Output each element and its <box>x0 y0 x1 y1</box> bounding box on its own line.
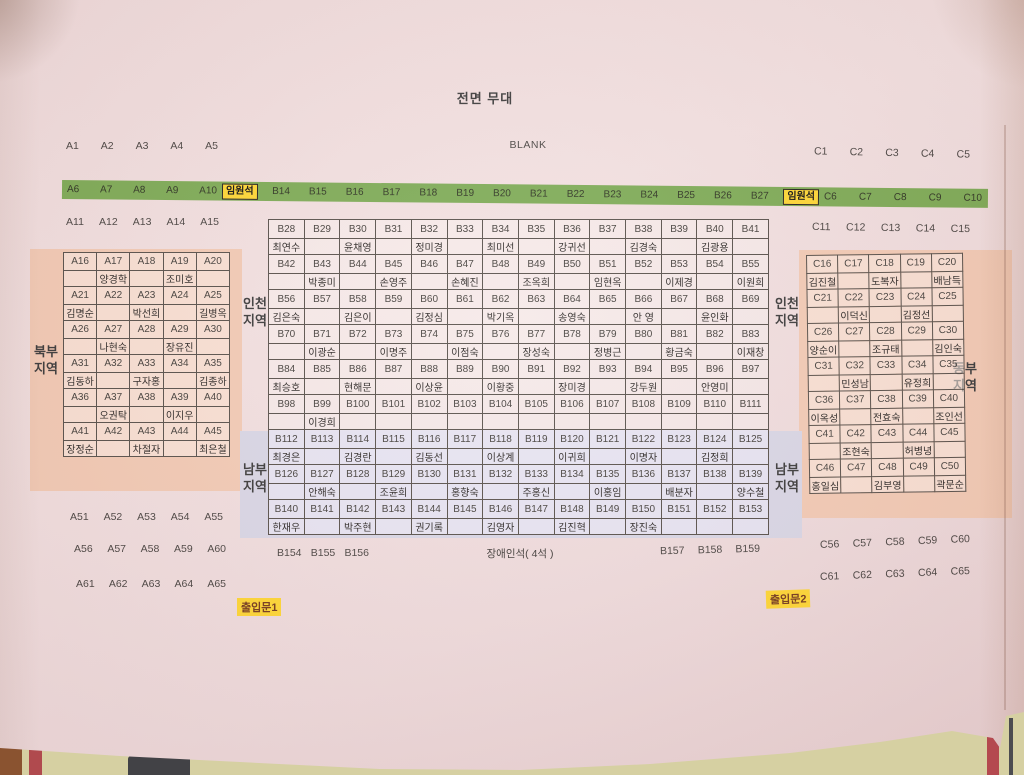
seat-cell-b134: B134 <box>554 465 590 484</box>
seat-cell-a26: A26 <box>64 321 97 339</box>
seat-label-a4: A4 <box>170 140 183 152</box>
seat-cell-b40: B40 <box>697 220 733 239</box>
name-cell <box>554 414 590 430</box>
seat-label-b158: B158 <box>698 544 723 557</box>
front-row-band: A6A7A8A9A10 임원석 B14B15B16B17B18B19B20B21… <box>62 180 988 208</box>
name-cell <box>590 239 626 255</box>
seat-cell-a42: A42 <box>97 423 130 441</box>
name-cell <box>697 344 733 360</box>
seat-cell-c17: C17 <box>838 255 869 273</box>
name-cell <box>901 340 932 356</box>
seat-cell-b117: B117 <box>447 430 483 449</box>
name-cell <box>64 407 97 423</box>
seat-cell-b86: B86 <box>340 360 376 379</box>
seat-cell-b37: B37 <box>590 220 626 239</box>
seat-cell-b61: B61 <box>447 290 483 309</box>
name-cell: 이원희 <box>733 274 769 290</box>
seat-cell-b128: B128 <box>340 465 376 484</box>
name-cell: 이상계 <box>483 449 519 465</box>
door-1-badge: 출입문1 <box>237 598 281 616</box>
seat-label-c56: C56 <box>820 538 840 551</box>
seat-row-a61-a65: A61A62A63A64A65 <box>76 578 226 590</box>
seat-cell-b85: B85 <box>304 360 340 379</box>
seat-label-a3: A3 <box>136 140 149 152</box>
name-cell: 이상윤 <box>411 379 447 395</box>
name-cell <box>838 273 869 289</box>
name-cell: 이광순 <box>304 344 340 360</box>
name-cell: 이재창 <box>733 344 769 360</box>
seat-cell-a40: A40 <box>196 389 229 407</box>
seat-cell-a39: A39 <box>163 389 196 407</box>
seat-label-b154: B154 <box>277 547 302 559</box>
seat-label-a5: A5 <box>205 140 218 152</box>
name-cell: 이옥성 <box>809 409 840 425</box>
name-cell <box>130 271 163 287</box>
seat-cell-a33: A33 <box>130 355 163 373</box>
name-cell <box>411 484 447 500</box>
name-cell <box>304 239 340 255</box>
seat-cell-b32: B32 <box>411 220 447 239</box>
seat-cell-b71: B71 <box>304 325 340 344</box>
seat-cell-b110: B110 <box>697 395 733 414</box>
seat-table-east: C16C17C18C19C20김진철도복자배남득C21C22C23C24C25이… <box>806 253 966 494</box>
name-cell: 박종미 <box>304 274 340 290</box>
seat-cell-c39: C39 <box>902 390 933 408</box>
seat-label-a61: A61 <box>76 578 95 590</box>
seat-label-c10: C10 <box>964 193 982 204</box>
seat-cell-b87: B87 <box>376 360 412 379</box>
name-cell <box>697 274 733 290</box>
seat-label-b21: B21 <box>530 188 548 199</box>
seat-cell-b100: B100 <box>340 395 376 414</box>
name-cell: 조인선 <box>933 407 964 423</box>
seat-row-c56-c60: C56C57C58C59C60 <box>820 533 970 551</box>
seat-cell-b33: B33 <box>447 220 483 239</box>
seat-cell-b68: B68 <box>697 290 733 309</box>
seat-cell-a21: A21 <box>64 287 97 305</box>
name-cell: 조현숙 <box>840 443 871 459</box>
seat-cell-b83: B83 <box>733 325 769 344</box>
name-cell: 안 영 <box>626 309 662 325</box>
name-cell: 배남득 <box>931 271 962 287</box>
name-cell: 손영주 <box>376 274 412 290</box>
name-cell <box>733 239 769 255</box>
seat-label-c7: C7 <box>859 192 872 203</box>
seat-row-a1-a5: A1A2A3A4A5 <box>66 140 218 152</box>
name-cell <box>196 407 229 423</box>
seat-cell-a29: A29 <box>163 321 196 339</box>
seat-cell-c45: C45 <box>934 423 965 441</box>
seat-cell-b105: B105 <box>518 395 554 414</box>
seat-label-b20: B20 <box>493 188 511 199</box>
name-cell <box>269 274 305 290</box>
seat-cell-b149: B149 <box>590 500 626 519</box>
seat-cell-a24: A24 <box>163 287 196 305</box>
seat-label-c11: C11 <box>812 221 831 233</box>
name-cell: 박주현 <box>340 519 376 535</box>
seat-cell-b121: B121 <box>590 430 626 449</box>
seat-cell-a32: A32 <box>97 355 130 373</box>
seat-cell-b46: B46 <box>411 255 447 274</box>
seat-cell-b122: B122 <box>626 430 662 449</box>
seat-cell-b60: B60 <box>411 290 447 309</box>
seat-cell-b97: B97 <box>733 360 769 379</box>
name-cell: 현해문 <box>340 379 376 395</box>
name-cell <box>661 449 697 465</box>
seat-cell-b147: B147 <box>518 500 554 519</box>
name-cell: 윤채영 <box>340 239 376 255</box>
name-cell: 김동하 <box>64 373 97 389</box>
name-cell <box>483 484 519 500</box>
seat-cell-b120: B120 <box>554 430 590 449</box>
seat-cell-b42: B42 <box>269 255 305 274</box>
seat-label-c3: C3 <box>885 147 899 159</box>
name-cell <box>447 309 483 325</box>
name-cell <box>902 408 933 424</box>
seat-cell-b141: B141 <box>304 500 340 519</box>
seat-cell-c41: C41 <box>809 425 840 443</box>
seat-cell-b152: B152 <box>697 500 733 519</box>
name-cell <box>590 414 626 430</box>
seat-cell-a30: A30 <box>196 321 229 339</box>
name-cell <box>590 309 626 325</box>
seating-chart-paper: 전면 무대 BLANK A1A2A3A4A5 A11A12A13A14A15 A… <box>0 0 1024 775</box>
seat-cell-a36: A36 <box>64 389 97 407</box>
name-cell: 김은이 <box>340 309 376 325</box>
seat-label-a56: A56 <box>74 543 93 555</box>
seat-cell-a18: A18 <box>130 253 163 271</box>
name-cell: 김은숙 <box>269 309 305 325</box>
seat-cell-c29: C29 <box>901 322 932 340</box>
seat-label-b24: B24 <box>640 190 658 201</box>
seat-cell-b30: B30 <box>340 220 376 239</box>
name-cell: 주홍신 <box>518 484 554 500</box>
seat-cell-b51: B51 <box>590 255 626 274</box>
seat-cell-b112: B112 <box>269 430 305 449</box>
seat-label-a57: A57 <box>107 543 126 555</box>
name-cell <box>661 239 697 255</box>
name-cell <box>900 272 931 288</box>
name-cell: 강귀선 <box>554 239 590 255</box>
seat-label-c62: C62 <box>852 569 872 582</box>
seat-cell-a38: A38 <box>130 389 163 407</box>
name-cell: 조옥희 <box>518 274 554 290</box>
name-cell: 장유진 <box>163 339 196 355</box>
seat-cell-c43: C43 <box>871 424 902 442</box>
name-cell <box>661 519 697 535</box>
seat-label-c13: C13 <box>881 222 900 234</box>
name-cell: 이명주 <box>376 344 412 360</box>
name-cell: 곽문순 <box>934 475 965 491</box>
seat-cell-c36: C36 <box>808 391 839 409</box>
name-cell: 최경은 <box>269 449 305 465</box>
name-cell: 정병근 <box>590 344 626 360</box>
name-cell: 강두원 <box>626 379 662 395</box>
name-cell <box>196 339 229 355</box>
seat-cell-b144: B144 <box>411 500 447 519</box>
name-cell <box>196 271 229 287</box>
seat-cell-b74: B74 <box>411 325 447 344</box>
seat-cell-a35: A35 <box>196 355 229 373</box>
name-cell <box>934 441 965 457</box>
name-cell: 민성남 <box>839 375 870 391</box>
seat-label-a1: A1 <box>66 140 79 152</box>
seat-cell-b53: B53 <box>661 255 697 274</box>
seat-cell-c49: C49 <box>903 458 934 476</box>
seat-cell-b125: B125 <box>733 430 769 449</box>
name-cell: 김경란 <box>340 449 376 465</box>
name-cell: 길병옥 <box>196 305 229 321</box>
name-cell <box>376 379 412 395</box>
seat-label-c59: C59 <box>918 534 938 547</box>
seat-cell-b132: B132 <box>483 465 519 484</box>
name-cell: 권기록 <box>411 519 447 535</box>
name-cell <box>269 344 305 360</box>
seat-cell-b84: B84 <box>269 360 305 379</box>
name-cell <box>518 519 554 535</box>
seat-label-a62: A62 <box>109 578 128 590</box>
seat-label-b22: B22 <box>567 189 585 200</box>
name-cell <box>840 409 871 425</box>
name-cell: 최미선 <box>483 239 519 255</box>
seat-row-a56-a60: A56A57A58A59A60 <box>74 543 226 555</box>
name-cell <box>304 309 340 325</box>
seat-label-b156: B156 <box>344 547 369 559</box>
name-cell <box>447 414 483 430</box>
seat-cell-c33: C33 <box>870 356 901 374</box>
seat-cell-b34: B34 <box>483 220 519 239</box>
seat-cell-b115: B115 <box>376 430 412 449</box>
vip-seat-badge-left: 임원석 <box>222 183 258 199</box>
stage-label: 전면 무대 <box>430 88 540 107</box>
seat-cell-b43: B43 <box>304 255 340 274</box>
seat-cell-b55: B55 <box>733 255 769 274</box>
name-cell: 안해숙 <box>304 484 340 500</box>
seat-cell-c25: C25 <box>932 287 963 305</box>
name-cell <box>733 379 769 395</box>
seat-label-a8: A8 <box>133 185 145 196</box>
name-cell <box>304 379 340 395</box>
seat-row-a11-a15: A11A12A13A14A15 <box>66 216 219 228</box>
seat-label-a7: A7 <box>100 184 112 195</box>
name-cell: 장미경 <box>554 379 590 395</box>
name-cell: 정미경 <box>411 239 447 255</box>
seat-cell-b113: B113 <box>304 430 340 449</box>
seat-label-c4: C4 <box>921 148 935 160</box>
seat-cell-b146: B146 <box>483 500 519 519</box>
seat-cell-c21: C21 <box>807 289 838 307</box>
name-cell: 김정선 <box>901 306 932 322</box>
seat-cell-b54: B54 <box>697 255 733 274</box>
name-cell <box>376 309 412 325</box>
seat-cell-b140: B140 <box>269 500 305 519</box>
seat-cell-b62: B62 <box>483 290 519 309</box>
seat-label-b157: B157 <box>660 545 685 558</box>
name-cell: 이제경 <box>661 274 697 290</box>
seat-label-a13: A13 <box>133 216 152 228</box>
name-cell: 김진혁 <box>554 519 590 535</box>
name-cell <box>518 379 554 395</box>
seat-cell-b130: B130 <box>411 465 447 484</box>
seat-cell-b29: B29 <box>304 220 340 239</box>
name-cell: 김부영 <box>872 476 903 492</box>
seat-cell-b50: B50 <box>554 255 590 274</box>
seat-label-b14: B14 <box>272 186 290 197</box>
seat-cell-b101: B101 <box>376 395 412 414</box>
seat-cell-b67: B67 <box>661 290 697 309</box>
seat-label-b159: B159 <box>735 543 760 556</box>
seat-cell-b96: B96 <box>697 360 733 379</box>
seat-label-b25: B25 <box>677 190 695 201</box>
name-cell: 김동선 <box>411 449 447 465</box>
seat-cell-c34: C34 <box>901 356 932 374</box>
seat-cell-b127: B127 <box>304 465 340 484</box>
seat-cell-c48: C48 <box>872 458 903 476</box>
seat-cell-b129: B129 <box>376 465 412 484</box>
name-cell <box>483 274 519 290</box>
name-cell: 최은철 <box>196 441 229 457</box>
name-cell <box>163 373 196 389</box>
seat-cell-b119: B119 <box>518 430 554 449</box>
seat-label-b15: B15 <box>309 186 327 197</box>
name-cell: 조미호 <box>163 271 196 287</box>
seat-cell-b72: B72 <box>340 325 376 344</box>
name-cell: 김정심 <box>411 309 447 325</box>
name-cell <box>933 373 964 389</box>
seat-row-b157-b159: B157B158B159 <box>660 543 760 558</box>
name-cell: 손혜진 <box>447 274 483 290</box>
seat-row-c11-c15: C11C12C13C14C15 <box>812 221 970 235</box>
seat-cell-b57: B57 <box>304 290 340 309</box>
seat-label-b155: B155 <box>311 547 336 559</box>
seat-cell-b102: B102 <box>411 395 447 414</box>
name-cell: 임현옥 <box>590 274 626 290</box>
seat-cell-b78: B78 <box>554 325 590 344</box>
seat-label-a60: A60 <box>207 543 226 555</box>
green-row-a-seats: A6A7A8A9A10 <box>67 184 217 196</box>
seat-cell-b76: B76 <box>483 325 519 344</box>
seat-cell-b142: B142 <box>340 500 376 519</box>
seat-cell-a25: A25 <box>196 287 229 305</box>
name-cell <box>163 305 196 321</box>
seat-cell-c23: C23 <box>869 288 900 306</box>
name-cell <box>870 306 901 322</box>
name-cell: 장진숙 <box>626 519 662 535</box>
seat-label-c2: C2 <box>850 146 864 158</box>
seat-label-b19: B19 <box>456 188 474 199</box>
name-cell: 최승호 <box>269 379 305 395</box>
seat-cell-b99: B99 <box>304 395 340 414</box>
seat-cell-a20: A20 <box>196 253 229 271</box>
seat-cell-c30: C30 <box>932 321 963 339</box>
seat-cell-a16: A16 <box>64 253 97 271</box>
seat-label-c64: C64 <box>918 566 938 579</box>
name-cell <box>733 449 769 465</box>
region-label-north: 북부지역 <box>31 343 61 377</box>
name-cell <box>376 239 412 255</box>
seat-label-a54: A54 <box>171 511 190 523</box>
seat-cell-b153: B153 <box>733 500 769 519</box>
seat-cell-b116: B116 <box>411 430 447 449</box>
name-cell <box>697 519 733 535</box>
seat-row-c61-c65: C61C62C63C64C65 <box>820 565 970 583</box>
name-cell <box>661 414 697 430</box>
name-cell: 나현숙 <box>97 339 130 355</box>
name-cell <box>697 414 733 430</box>
seat-cell-b59: B59 <box>376 290 412 309</box>
name-cell: 김명순 <box>64 305 97 321</box>
name-cell: 이지우 <box>163 407 196 423</box>
name-cell <box>626 414 662 430</box>
seat-cell-b98: B98 <box>269 395 305 414</box>
seat-cell-b103: B103 <box>447 395 483 414</box>
seat-cell-c22: C22 <box>838 289 869 307</box>
seat-row-b154-b156: B154B155B156 <box>277 547 369 559</box>
seat-cell-b143: B143 <box>376 500 412 519</box>
seat-cell-a43: A43 <box>130 423 163 441</box>
seat-cell-b107: B107 <box>590 395 626 414</box>
seat-cell-b73: B73 <box>376 325 412 344</box>
name-cell: 윤인화 <box>697 309 733 325</box>
seat-cell-b82: B82 <box>697 325 733 344</box>
seat-cell-b89: B89 <box>447 360 483 379</box>
seat-table-north: A16A17A18A19A20양경학조미호A21A22A23A24A25김명순박… <box>63 252 230 457</box>
seat-label-c1: C1 <box>814 145 828 157</box>
seat-cell-a27: A27 <box>97 321 130 339</box>
seat-cell-b64: B64 <box>554 290 590 309</box>
seat-cell-c40: C40 <box>933 389 964 407</box>
seat-cell-b111: B111 <box>733 395 769 414</box>
name-cell <box>447 519 483 535</box>
name-cell <box>483 344 519 360</box>
seat-cell-b150: B150 <box>626 500 662 519</box>
seat-cell-b65: B65 <box>590 290 626 309</box>
seat-label-c5: C5 <box>956 148 970 160</box>
seat-cell-b36: B36 <box>554 220 590 239</box>
seat-cell-b109: B109 <box>661 395 697 414</box>
seat-label-c15: C15 <box>951 223 970 235</box>
name-cell <box>932 305 963 321</box>
wall-line-right <box>1009 718 1013 775</box>
name-cell: 이경희 <box>304 414 340 430</box>
name-cell <box>590 519 626 535</box>
name-cell <box>269 484 305 500</box>
seat-cell-c20: C20 <box>931 253 962 271</box>
region-label-south-right: 남부지역 <box>772 461 802 495</box>
name-cell: 김종하 <box>196 373 229 389</box>
name-cell: 안영미 <box>697 379 733 395</box>
seat-cell-b49: B49 <box>518 255 554 274</box>
name-cell <box>447 449 483 465</box>
seat-cell-b80: B80 <box>626 325 662 344</box>
seat-label-c8: C8 <box>894 192 907 203</box>
seat-label-b23: B23 <box>604 189 622 200</box>
name-cell: 구자홍 <box>130 373 163 389</box>
name-cell <box>340 274 376 290</box>
seat-cell-b38: B38 <box>626 220 662 239</box>
seat-cell-b126: B126 <box>269 465 305 484</box>
name-cell: 양수철 <box>733 484 769 500</box>
name-cell <box>64 339 97 355</box>
name-cell <box>697 484 733 500</box>
name-cell <box>376 449 412 465</box>
seat-cell-c16: C16 <box>807 255 838 273</box>
name-cell: 전효숙 <box>871 408 902 424</box>
seat-cell-b48: B48 <box>483 255 519 274</box>
name-cell: 차절자 <box>130 441 163 457</box>
name-cell <box>733 519 769 535</box>
name-cell: 이점숙 <box>447 344 483 360</box>
